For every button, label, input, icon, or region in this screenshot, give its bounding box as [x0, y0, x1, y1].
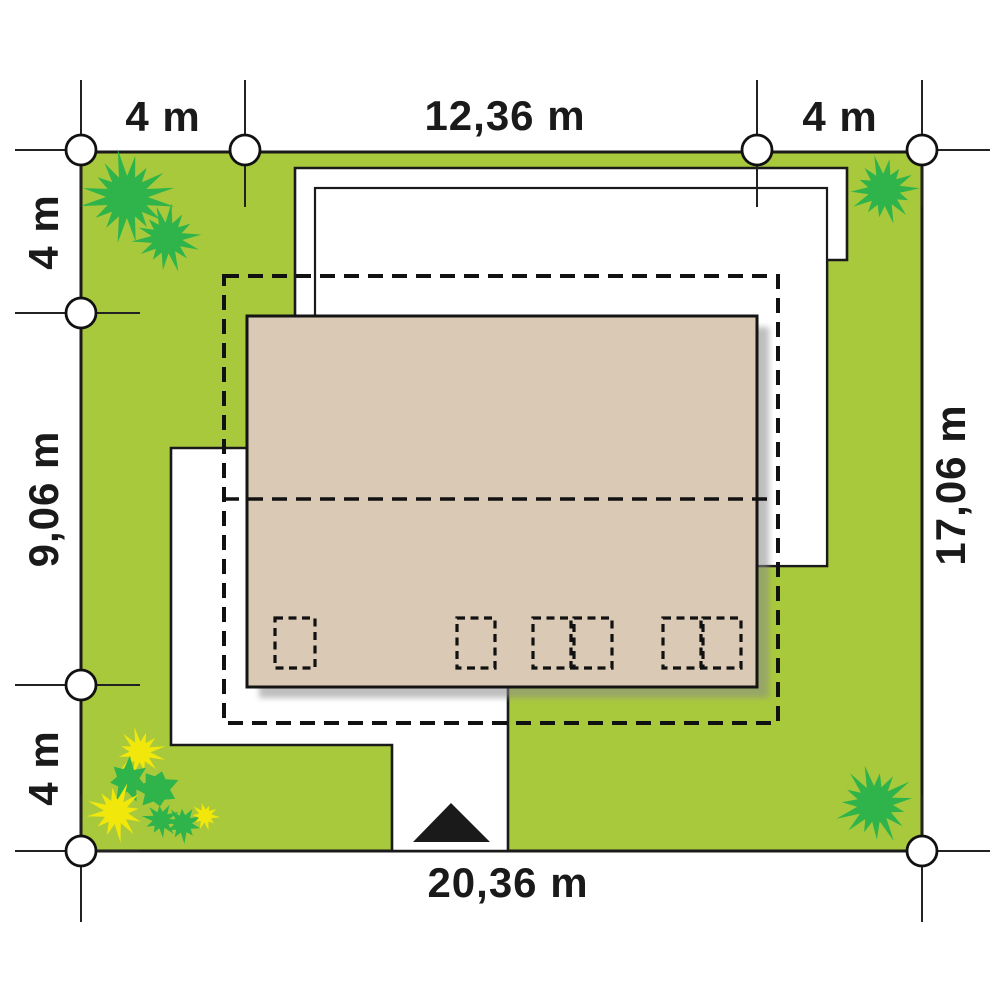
- survey-point-icon: [66, 298, 96, 328]
- survey-point-icon: [230, 135, 260, 165]
- dimension-label-left-setback-bottom: 4 m: [23, 730, 65, 805]
- dimension-label-plot-width: 20,36 m: [427, 862, 588, 904]
- site-plan-drawing: [0, 0, 1000, 1000]
- survey-point-icon: [66, 670, 96, 700]
- dimension-label-top-setback-right: 4 m: [802, 96, 877, 138]
- roof-plan: [247, 316, 757, 687]
- dimension-label-top-setback-left: 4 m: [125, 96, 200, 138]
- dimension-label-plot-depth: 17,06 m: [930, 404, 972, 565]
- survey-point-icon: [66, 135, 96, 165]
- dimension-label-house-width: 12,36 m: [424, 95, 585, 137]
- survey-point-icon: [66, 836, 96, 866]
- dimension-label-left-setback-top: 4 m: [23, 194, 65, 269]
- site-plan: 4 m 12,36 m 4 m 4 m 9,06 m 4 m 17,06 m 2…: [0, 0, 1000, 1000]
- survey-point-icon: [907, 836, 937, 866]
- survey-point-icon: [742, 135, 772, 165]
- dimension-label-house-depth: 9,06 m: [23, 431, 65, 568]
- survey-point-icon: [907, 135, 937, 165]
